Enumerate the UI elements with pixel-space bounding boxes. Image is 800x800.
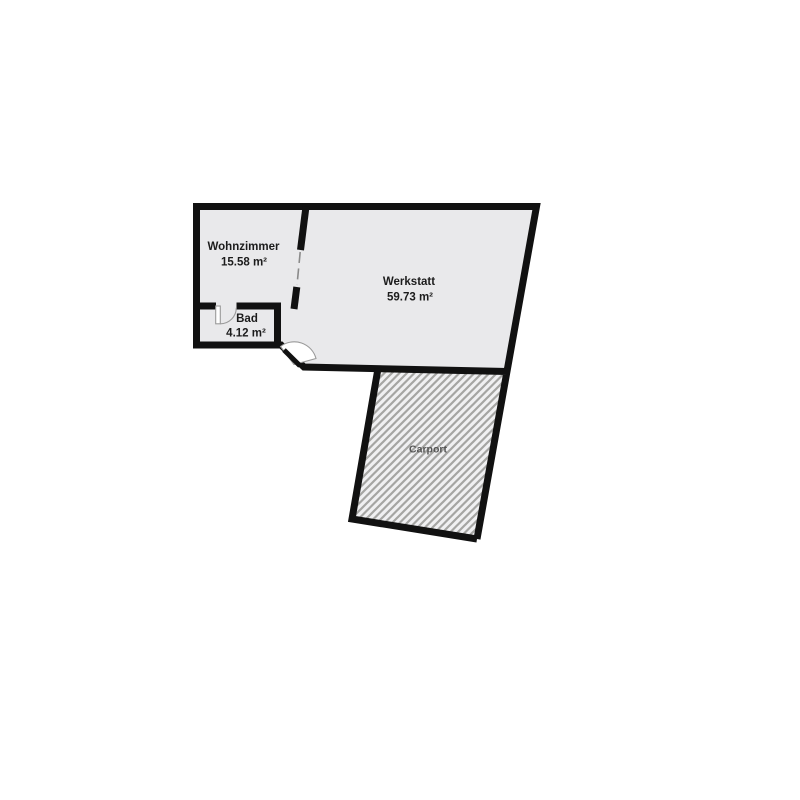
floorplan-drawing: Wohnzimmer 15.58 m² Werkstatt 59.73 m² B…: [0, 0, 800, 800]
label-werkstatt-area: 59.73 m²: [387, 292, 433, 304]
bad-door-leaf: [216, 306, 221, 324]
divider-wall-lower: [294, 287, 297, 309]
label-werkstatt-name: Werkstatt: [383, 276, 435, 288]
label-wohnzimmer-name: Wohnzimmer: [208, 241, 281, 253]
label-carport-name: Carport: [409, 444, 447, 456]
label-bad-area: 4.12 m²: [226, 328, 266, 340]
label-bad-name: Bad: [236, 313, 258, 325]
label-wohnzimmer-area: 15.58 m²: [221, 257, 267, 269]
floorplan-page: Wohnzimmer 15.58 m² Werkstatt 59.73 m² B…: [0, 0, 800, 800]
